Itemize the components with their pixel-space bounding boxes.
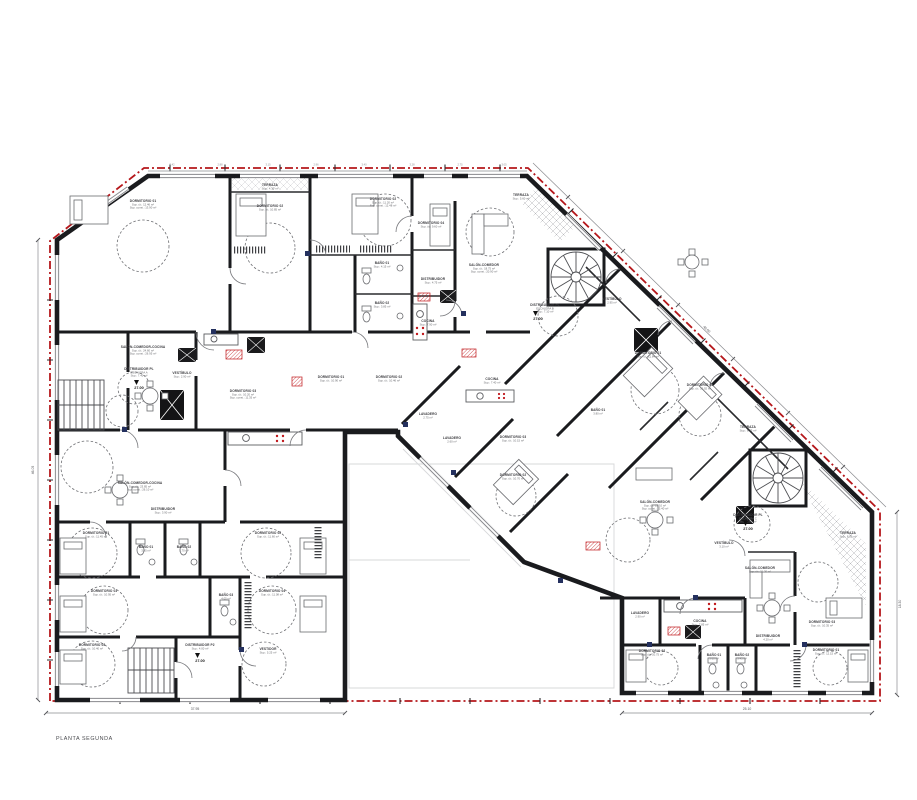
svg-text:27.00: 27.00 — [533, 317, 543, 321]
room-label: DORMITORIO 02Sup. út.: 10.46 m² — [376, 375, 403, 382]
room-label: DORMITORIO 04Sup. út.: 11.08 m² — [259, 589, 286, 596]
room-label: TERRAZASup.: 6.75 m² — [740, 425, 757, 432]
room-label: BAÑO 034.05 m² — [219, 592, 234, 600]
room-label: BAÑO 023.70 m² — [177, 544, 192, 552]
room-label: BAÑO 013.60 m² — [707, 652, 722, 660]
exterior-walls — [57, 176, 872, 700]
room-label: DORMITORIO 03Sup. út.: 10.15 m² — [500, 435, 527, 442]
room-label: SALÓN-COMEDORSup. út.: 23.10 m²Sup. cons… — [640, 499, 671, 511]
room-label: DORMITORIO 01Sup. út.: 12.15 m² — [813, 648, 840, 655]
room-label: SALÓN-COMEDORSup. út.: 21.30 m² — [745, 565, 776, 573]
room-label: VESTIDORSup.: 5.25 m² — [259, 647, 277, 654]
room-label: DORMITORIO 02Sup. út.: 10.70 m² — [500, 473, 527, 480]
room-label: LAVADERO2.60 m² — [443, 436, 462, 443]
plan-title: PLANTA SEGUNDA — [56, 736, 113, 742]
room-label: BAÑO 02Sup.: 3.85 m² — [374, 300, 391, 308]
level-marker: 27.00 — [134, 380, 144, 390]
floor-plan-drawing: DORMITORIO 01Sup. út.: 12.46 m²Sup. cons… — [0, 0, 917, 800]
windows — [56, 175, 874, 702]
room-label: DISTRIBUIDORSup.: 3.90 m² — [151, 507, 176, 514]
room-label: DORMITORIO 02Sup. út.: 10.85 m² — [257, 204, 284, 211]
dim-bottom-right: 25.10 — [743, 707, 752, 711]
room-label: DORMITORIO 02Sup. út.: 10.92 m² — [687, 383, 714, 390]
room-label: DORMITORIO 03Sup. út.: 10.95 m² — [91, 589, 118, 596]
room-label: COCINASup.: 7.90 m² — [420, 319, 437, 326]
room-label: VESTÍBULOSup.: 2.90 m² — [172, 370, 192, 378]
tick-label: 3.42 — [169, 163, 175, 167]
svg-text:27.00: 27.00 — [743, 527, 753, 531]
room-label: BAÑO 01Sup.: 4.15 m² — [374, 260, 391, 268]
room-label: DORMITORIO 02Sup. út.: 11.20 m²Sup. cons… — [370, 197, 397, 208]
tick-label: 2.88 — [217, 163, 223, 167]
tick-label: 2.96 — [313, 163, 319, 167]
room-label: SALÓN-COMEDORSup. út.: 18.75 m²Sup. cons… — [469, 262, 500, 274]
room-label: COCINASup.: 7.85 m² — [692, 619, 709, 626]
room-label: BAÑO 013.80 m² — [591, 407, 606, 415]
dim-right: 18.30 — [898, 600, 902, 609]
level-marker: 27.00 — [195, 653, 205, 663]
room-label: TERRAZASup.: 8.20 m² — [840, 531, 857, 538]
room-label: DORMITORIO 01Sup. út.: 10.90 m² — [318, 375, 345, 382]
room-label: BAÑO 013.95 m² — [139, 544, 154, 552]
room-label: DORMITORIO 04Sup. út.: 9.60 m² — [418, 221, 445, 228]
room-label: DORMITORIO 02Sup. út.: 11.60 m² — [255, 531, 282, 538]
dimension-lines — [36, 163, 899, 715]
room-label: DORMITORIO 03Sup. út.: 10.20 m²Sup. cons… — [230, 389, 257, 400]
room-label: TERRAZASup.: 5.60 m² — [513, 193, 530, 200]
stair-flight-d — [128, 648, 174, 693]
floor-plan-canvas: DORMITORIO 01Sup. út.: 12.46 m²Sup. cons… — [0, 0, 917, 800]
tick-label: 3.40 — [361, 163, 367, 167]
tick-label: 3.05 — [501, 163, 507, 167]
room-label: DISTRIBUIDOR PLESCALERA ASup.: 7.40 m² — [124, 367, 153, 378]
room-label: DORMITORIO 01Sup. út.: 11.45 m² — [83, 531, 110, 538]
room-label: LAVADERO2.75 m² — [419, 412, 438, 419]
tick-label: 3.28 — [409, 163, 415, 167]
property-boundary — [47, 165, 880, 705]
dim-bottom-left: 37.95 — [191, 707, 200, 711]
room-label: DISTRIBUIDOR P2Sup.: 4.00 m² — [185, 643, 214, 650]
tick-label: 2.75 — [457, 163, 463, 167]
room-label: TERRAZASup.: 4.30 m² — [262, 183, 279, 190]
elevators — [160, 290, 754, 639]
dimension-texts: 37.95 25.10 46.05 18.30 48.60 — [31, 325, 902, 711]
room-label: DORMITORIO 01Sup. út.: 12.46 m²Sup. cons… — [130, 199, 157, 210]
room-label: LAVADERO2.90 m² — [631, 611, 650, 618]
room-label: DISTRIBUIDOR4.20 m² — [756, 634, 781, 641]
svg-text:27.00: 27.00 — [195, 659, 205, 663]
room-label: BAÑO 023.45 m² — [735, 652, 750, 660]
room-label: DISTRIBUIDORSup.: 4.75 m² — [421, 277, 446, 284]
courtyard-lines — [349, 449, 614, 688]
room-label: DORMITORIO 03Sup. út.: 10.35 m² — [809, 620, 836, 627]
beds — [60, 194, 868, 684]
room-label: VESTÍBULO3.10 m² — [714, 540, 734, 548]
room-label: COCINASup.: 7.40 m² — [484, 377, 501, 384]
tick-label: 3.15 — [265, 163, 271, 167]
room-label: DORMITORIO 02Sup. út.: 10.75 m² — [639, 649, 666, 656]
furniture — [60, 194, 868, 688]
room-label: DORMITORIO 01Sup. út.: 11.84 m² — [635, 351, 662, 358]
spiral-stair-c — [753, 453, 803, 503]
spiral-stair-b — [551, 252, 601, 302]
dim-left: 46.05 — [31, 466, 35, 475]
sofas — [472, 214, 790, 598]
dimension-tick-labels: 3.422.883.152.963.403.282.753.05 — [169, 163, 507, 167]
terrace-hatch — [232, 178, 866, 606]
interior-walls — [57, 176, 872, 700]
room-label: DORMITORIO 05Sup. út.: 10.40 m² — [79, 643, 106, 650]
svg-text:27.00: 27.00 — [134, 386, 144, 390]
